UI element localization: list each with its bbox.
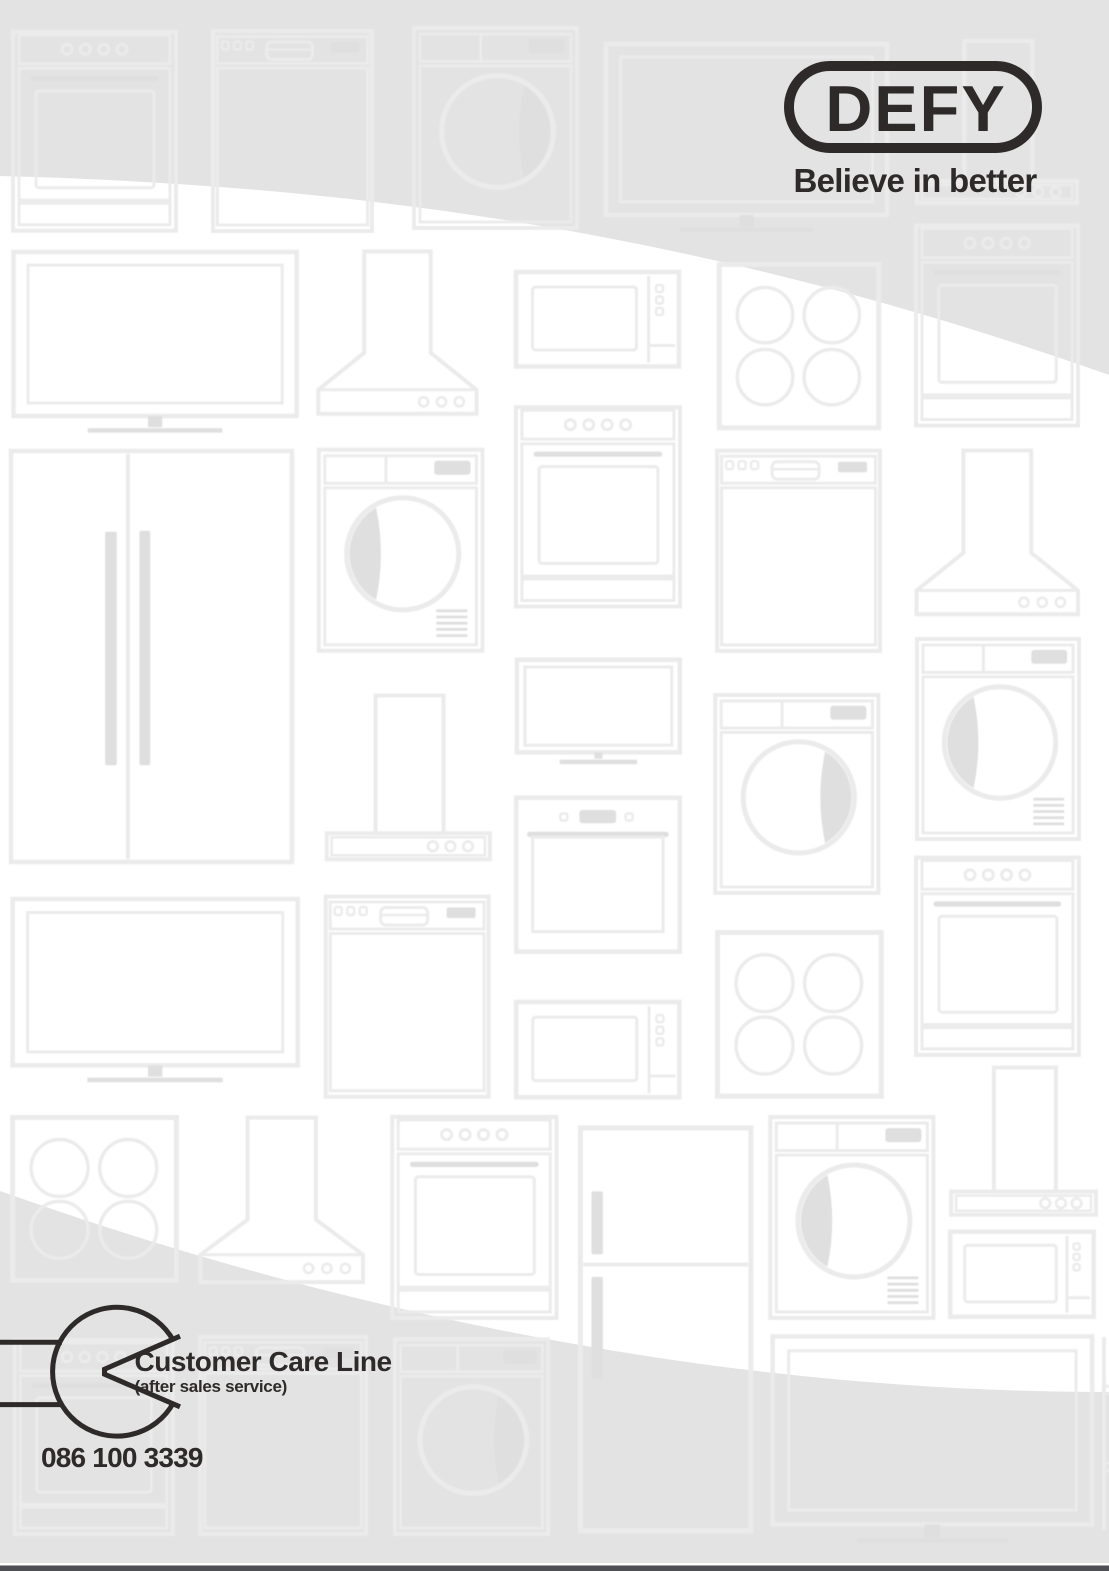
svg-text:(after sales service): (after sales service) — [135, 1377, 287, 1396]
svg-text:Believe in better: Believe in better — [793, 162, 1037, 199]
svg-text:086 100 3339: 086 100 3339 — [41, 1442, 203, 1473]
svg-text:Customer Care Line: Customer Care Line — [135, 1346, 392, 1377]
svg-text:DEFY: DEFY — [825, 72, 1006, 145]
